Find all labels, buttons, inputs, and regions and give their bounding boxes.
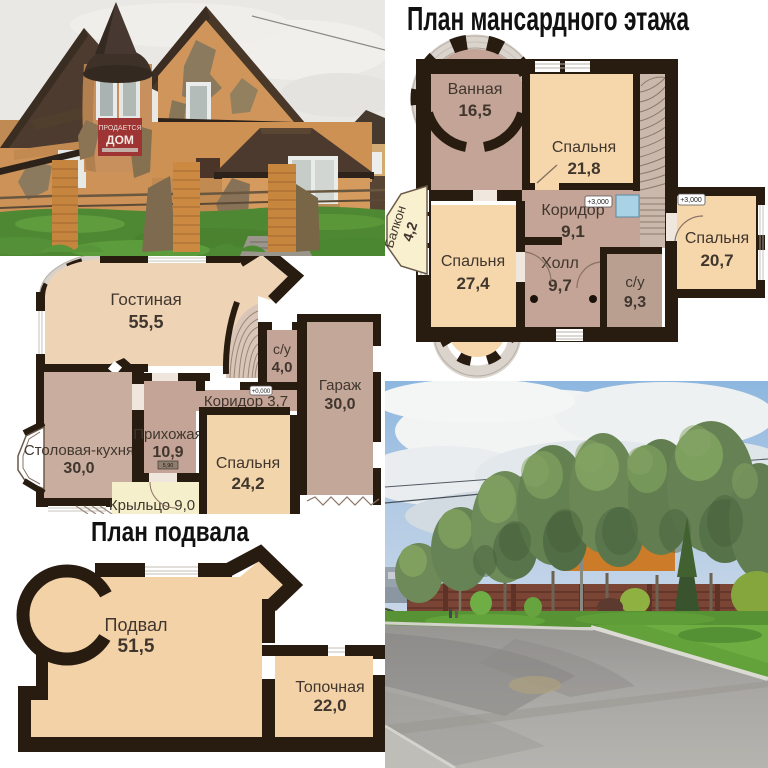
svg-text:Ванная: Ванная xyxy=(448,81,503,98)
svg-text:+3,000: +3,000 xyxy=(587,199,609,206)
svg-text:27,4: 27,4 xyxy=(456,274,490,293)
svg-text:+3,000: +3,000 xyxy=(680,197,702,204)
svg-text:4,0: 4,0 xyxy=(272,359,293,376)
svg-text:9,3: 9,3 xyxy=(624,294,646,311)
svg-text:9,7: 9,7 xyxy=(548,276,572,295)
svg-text:+0,000: +0,000 xyxy=(252,389,271,395)
svg-text:Спальня: Спальня xyxy=(685,230,749,247)
svg-text:Столовая-кухня: Столовая-кухня xyxy=(24,442,134,459)
svg-text:16,5: 16,5 xyxy=(458,101,491,120)
svg-text:21,8: 21,8 xyxy=(567,159,600,178)
svg-text:Спальня: Спальня xyxy=(441,253,505,270)
svg-text:55,5: 55,5 xyxy=(128,312,163,332)
svg-text:51,5: 51,5 xyxy=(118,636,155,657)
svg-text:Топочная: Топочная xyxy=(295,679,364,696)
svg-text:22,0: 22,0 xyxy=(313,696,346,715)
svg-text:30,0: 30,0 xyxy=(324,396,355,413)
svg-text:с/у: с/у xyxy=(625,274,645,291)
svg-text:Гостиная: Гостиная xyxy=(110,290,181,309)
svg-text:с/у: с/у xyxy=(273,341,291,357)
svg-text:10,9: 10,9 xyxy=(152,444,183,461)
svg-text:Спальня: Спальня xyxy=(216,455,280,472)
svg-text:ПРОДАЕТСЯ: ПРОДАЕТСЯ xyxy=(98,125,141,132)
svg-text:Прихожая: Прихожая xyxy=(133,426,203,443)
svg-text:ДОМ: ДОМ xyxy=(106,133,134,147)
svg-text:План подвала: План подвала xyxy=(91,516,249,547)
svg-text:9,1: 9,1 xyxy=(561,222,585,241)
svg-text:Спальня: Спальня xyxy=(552,139,616,156)
svg-text:Крыльцо 9,0: Крыльцо 9,0 xyxy=(109,497,195,514)
svg-text:Подвал: Подвал xyxy=(105,615,168,635)
svg-text:24,2: 24,2 xyxy=(231,474,264,493)
svg-text:30,0: 30,0 xyxy=(63,460,94,477)
svg-text:План мансардного этажа: План мансардного этажа xyxy=(407,0,689,37)
svg-text:Гараж: Гараж xyxy=(319,377,361,394)
svg-text:Холл: Холл xyxy=(541,255,579,272)
svg-text:20,7: 20,7 xyxy=(700,251,733,270)
svg-text:5,90: 5,90 xyxy=(163,463,174,469)
